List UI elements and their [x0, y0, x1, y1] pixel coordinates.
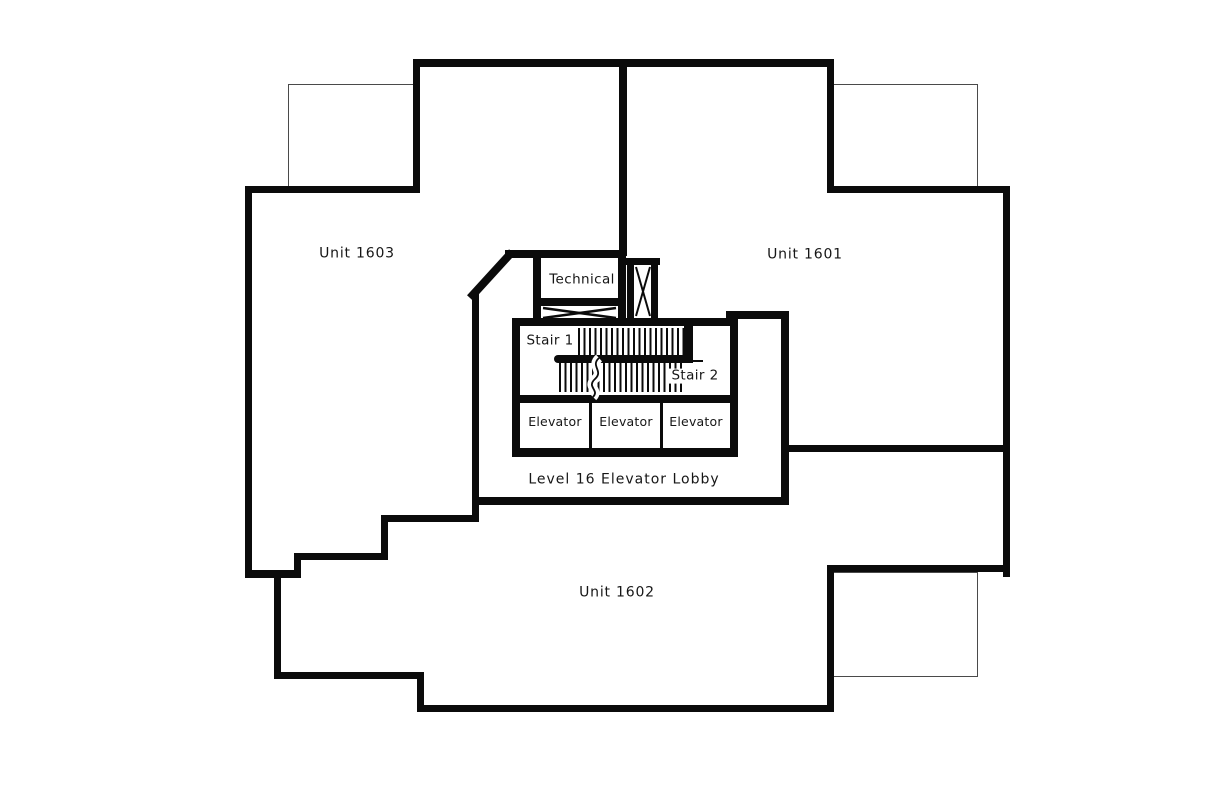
shaft-x-mark-line-1: [636, 267, 650, 316]
wall-lobby-bottom: [472, 497, 789, 505]
wall-stair-elevator-divider: [512, 395, 738, 403]
unit-1601-label: Unit 1601: [767, 247, 843, 262]
wall-1603-left: [245, 186, 252, 578]
wall-1602-southwest-step-h: [274, 672, 424, 679]
wall-1602-right: [827, 565, 834, 712]
wall-1603-northeast-vertical: [413, 59, 420, 193]
wall-1603-bottom-c: [381, 515, 479, 522]
wall-lobby-right: [781, 311, 789, 505]
wall-stair-left: [512, 318, 520, 457]
elevator-3-label: Elevator: [669, 415, 722, 429]
wall-1601-1602-divider: [782, 445, 1010, 452]
stair-1-treads: [578, 328, 684, 355]
wall-stair-right: [730, 318, 738, 457]
balcony-top-left: [288, 84, 417, 190]
wall-1603-bottom-b: [294, 553, 388, 560]
balcony-bottom-right: [830, 572, 978, 677]
wall-1603-top: [245, 186, 417, 193]
wall-1602-bottom: [417, 705, 834, 712]
elevator-1-label: Elevator: [528, 415, 581, 429]
wall-lobby-top: [505, 250, 626, 258]
unit-1603-label: Unit 1603: [319, 246, 395, 261]
elevator-divider-2: [660, 403, 663, 448]
wall-1603-bottom-a: [245, 570, 301, 578]
wall-lobby-left: [472, 291, 479, 505]
wall-1602-southeast-step-h: [827, 565, 1010, 572]
wall-1601-top: [827, 186, 1010, 193]
floor-plan: Unit 1603 Unit 1601 Unit 1602 Technical …: [0, 0, 1224, 792]
balcony-top-right: [830, 84, 978, 188]
unit-1602-label: Unit 1602: [579, 585, 655, 600]
wall-technical-left: [533, 252, 541, 326]
wall-1602-left: [274, 570, 281, 679]
wall-technical-right: [618, 250, 626, 326]
elevator-divider-1: [589, 403, 592, 448]
stair-2-label: Stair 2: [668, 369, 721, 384]
wall-stair-landing-divider: [684, 326, 693, 358]
wall-1601-northwest-vertical: [827, 59, 834, 193]
wall-east: [1003, 186, 1010, 577]
wall-shaft-right: [651, 258, 658, 326]
stair-2-treads: [559, 363, 683, 392]
elevator-2-label: Elevator: [599, 415, 652, 429]
wall-party-center: [619, 59, 627, 256]
wall-technical-bottom: [533, 298, 626, 306]
duct-x-mark-line-2: [543, 308, 616, 318]
lobby-label: Level 16 Elevator Lobby: [528, 472, 719, 487]
wall-elevator-bottom: [512, 448, 738, 457]
duct-x-mark-line-1: [543, 308, 616, 318]
technical-room-label: Technical: [549, 273, 615, 288]
stair-1-label: Stair 1: [526, 334, 573, 349]
wall-stair-top: [512, 318, 738, 326]
stair-center-rail: [554, 355, 693, 363]
wall-shaft-left: [627, 258, 634, 326]
shaft-x-mark-line-2: [636, 267, 650, 316]
